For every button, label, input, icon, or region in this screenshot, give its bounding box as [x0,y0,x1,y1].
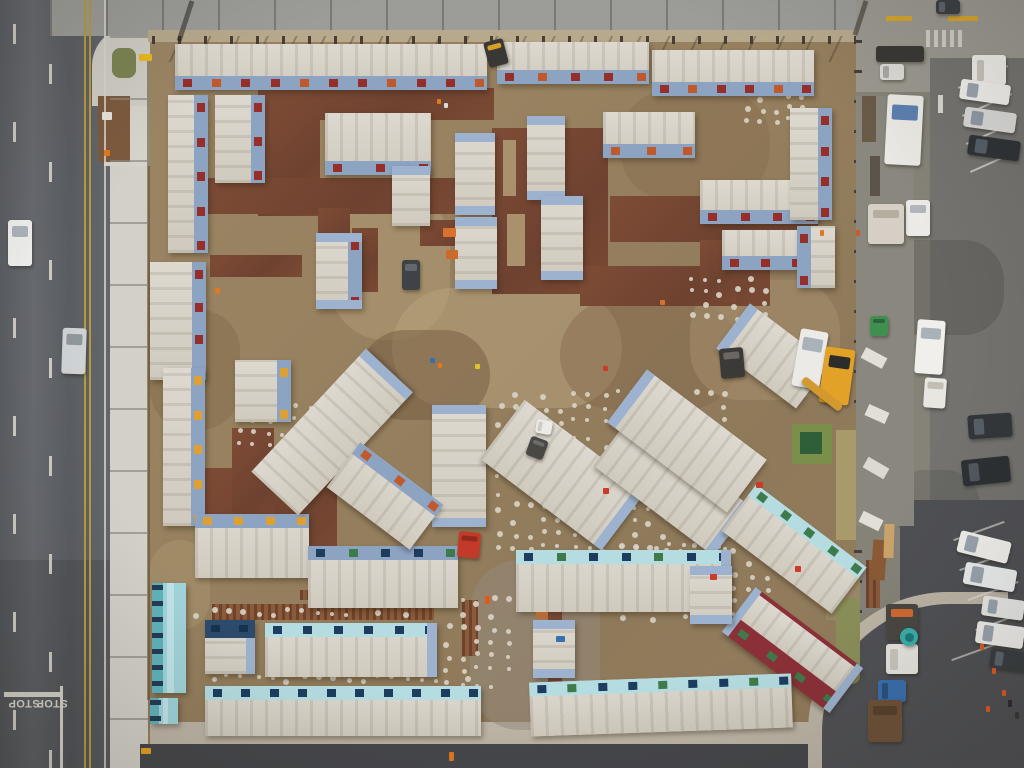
window [273,626,282,634]
wall-trim [308,546,458,560]
window [567,684,576,692]
concrete-footing [572,403,577,408]
cabin-center-3 [527,116,565,200]
window [730,259,739,267]
window [254,103,262,112]
cable-spool [900,628,918,646]
concrete-footing [603,407,607,411]
blue-item [430,358,435,363]
wall-trim [603,144,695,158]
window [557,553,566,561]
concrete-footing [616,389,620,393]
windshield [974,418,985,435]
window [441,689,450,697]
window [203,517,212,525]
concrete-footing [586,437,590,441]
concrete-footing [271,613,276,618]
end-cap [316,233,362,242]
window [254,137,262,146]
cone [986,706,990,712]
windshield [883,66,888,77]
yellow-curb-2 [948,16,978,21]
window [800,234,808,243]
window [683,147,692,155]
concrete-footing [761,109,766,114]
window [266,517,275,525]
windshield [66,334,83,345]
rowhouse-left-2 [215,95,265,183]
windshield [873,210,898,219]
window [604,73,613,81]
concrete-footing [775,120,780,125]
wall-trim [352,442,443,516]
cabin-center-4 [541,196,583,280]
lane-dash [49,358,52,378]
window [351,241,359,250]
concrete-footing [540,394,546,400]
wall-trim [205,686,481,700]
wall-trim [191,368,205,526]
cabin-bottom-2 [533,620,575,678]
concrete-footing [690,288,694,292]
wall-trim [195,514,309,528]
concrete-footing [690,312,696,318]
window [297,517,306,525]
orange-pallet [446,250,458,259]
window [395,626,404,634]
window [821,177,829,186]
window [197,103,205,112]
utility-box [102,112,112,120]
concrete-footing [212,677,217,682]
wood-deck [580,266,770,306]
window [197,207,205,216]
wood-deck [210,255,302,277]
concrete-footing [586,404,591,409]
windshield [890,649,897,670]
concrete-footing [619,544,624,549]
windshield [892,104,918,121]
roof-ridge [163,698,169,724]
window [349,549,358,557]
wall-trim [497,70,649,84]
end-cap [432,405,486,414]
concrete-footing [238,674,242,678]
blue-machine [878,680,906,702]
blue-item [556,636,565,642]
concrete-footing [461,598,465,602]
cone [992,668,996,674]
window [234,517,243,525]
window [628,682,637,690]
window [270,689,279,697]
window [195,270,203,279]
window [197,138,205,147]
windshield [974,138,987,153]
concrete-footing [443,642,449,648]
windshield [977,60,984,81]
rowhouse-top-7 [790,108,832,220]
concrete-footing [267,432,271,436]
window [446,549,455,557]
bottom-road [140,744,904,768]
window [329,79,338,87]
window [537,685,546,693]
concrete-footing [443,668,448,673]
concrete-footing [495,422,501,428]
red-forklift [457,531,481,559]
rowhouse-left-4 [150,262,206,380]
window [194,445,202,454]
material-stack [883,524,894,558]
concrete-footing [682,543,686,547]
window [211,625,220,632]
concrete-footing [574,545,578,549]
concrete-footing [716,292,722,298]
window [376,164,385,172]
window [821,147,829,156]
concrete-footing [465,676,471,682]
concrete-footing [403,612,409,618]
concrete-footing [544,408,549,413]
cone [449,752,454,761]
material-stack [870,156,880,196]
end-cap [541,196,583,205]
pedestrian [1008,700,1012,707]
window [241,689,250,697]
window [469,689,478,697]
lane-dash [49,162,52,182]
window [241,79,250,87]
concrete-footing [765,576,770,581]
window [658,681,667,689]
orange-marker [660,300,665,305]
suv-dark-1 [967,412,1013,439]
lane-dash [49,260,52,280]
concrete-footing [489,652,494,657]
concrete-footing [344,613,348,617]
concrete-footing [633,518,637,522]
end-cap [316,300,362,309]
concrete-footing [361,679,366,684]
concrete-footing [708,390,714,396]
concrete-footing [766,588,771,593]
concrete-footing [722,391,728,397]
concrete-footing [495,507,501,513]
concrete-footing [683,614,688,619]
concrete-footing [510,546,515,551]
skid-steer [719,347,746,379]
end-cap [455,217,497,226]
orange-pallet [443,228,456,237]
windshield [873,319,886,323]
window [737,629,749,641]
window [660,85,669,93]
concrete-footing [732,598,737,603]
roof-ridge [167,583,174,693]
window [589,553,598,561]
window [756,492,768,504]
window [611,147,620,155]
window [779,677,788,685]
window [271,79,280,87]
concrete-footing [749,287,755,293]
window [414,549,423,557]
window [774,85,783,93]
concrete-footing [447,656,452,661]
concrete-footing [474,665,478,669]
orange-marker [104,150,110,156]
window [850,563,862,575]
rowhouse-left-6 [163,368,205,526]
windshield [405,264,418,271]
concrete-footing [496,493,500,497]
concrete-footing [268,443,272,447]
rowhouse-top-6 [722,230,804,270]
window [300,79,309,87]
xwalk-5 [958,30,962,47]
windshield [970,566,984,583]
lane-dash [13,122,16,142]
window [687,553,696,561]
window [654,553,663,561]
concrete-footing [704,289,708,293]
end-cap [533,620,575,629]
concrete-footing [238,428,243,433]
window [316,549,325,557]
concrete-footing [541,543,545,547]
windshield [828,355,851,370]
lane-dash [13,514,16,534]
grass-strip-right [836,430,856,540]
concrete-footing [475,625,481,631]
concrete-footing [347,678,352,683]
concrete-footing [750,575,755,580]
window [280,410,288,419]
concrete-footing [717,279,721,283]
concrete-footing [763,288,769,294]
window [821,116,829,125]
yellow-curb-1 [886,16,912,21]
window [538,73,547,81]
window [360,450,372,462]
yellow-mark [141,748,151,754]
wall-trim [277,360,291,422]
yellow-item [475,364,480,369]
window [800,276,808,285]
concrete-footing [475,651,480,656]
truck-cab-white [906,200,930,236]
windshield [12,226,29,236]
concrete-footing [292,416,296,420]
wall-trim [175,76,487,90]
windshield [537,421,542,431]
concrete-footing [492,595,498,601]
suv-dark-2 [961,456,1011,487]
window [427,500,439,512]
concrete-footing [528,502,534,508]
end-cap [533,669,575,678]
concrete-footing [510,520,516,526]
concrete-footing [506,596,512,602]
concrete-footing [703,302,709,308]
cone [1002,690,1006,696]
rowhouse-top-4 [603,112,695,158]
window [571,73,580,81]
end-cap [427,623,437,677]
concrete-footing [542,529,547,534]
rowhouse-bottom-1 [308,546,458,608]
window [239,625,248,632]
rowhouse-top-2 [497,42,649,84]
concrete-footing [499,403,505,409]
concrete-footing [746,587,751,592]
window [688,85,697,93]
yellow-line-1 [84,0,86,768]
window [197,241,205,250]
concrete-footing [473,601,479,607]
concrete-footing [667,542,671,546]
concrete-footing [660,534,666,540]
concrete-footing [474,639,479,644]
concrete-footing [762,301,767,306]
window [334,626,343,634]
wall-trim [516,550,731,564]
concrete-footing [330,612,334,616]
pedestrian [1015,712,1019,719]
trailer-stack [868,204,904,244]
worker [438,363,442,368]
pickup-white-2 [914,319,946,375]
concrete-footing [571,417,575,421]
xwalk-2 [934,30,938,47]
windshield [982,625,995,642]
cone [485,596,490,604]
concrete-footing [299,608,304,613]
concrete-footing [571,391,576,396]
concrete-footing [460,612,466,618]
concrete-footing [541,517,546,522]
lane-dash [13,24,16,44]
worker [856,230,860,236]
concrete-footing [514,534,519,539]
window [637,73,646,81]
concrete-footing [757,97,763,103]
window [446,79,455,87]
teal-building [152,583,186,693]
wall-trim [818,108,832,220]
concrete-footing [488,666,492,670]
concrete-footing [744,118,749,123]
window [333,164,342,172]
material-stack [862,96,876,142]
concrete-footing [496,545,501,550]
window [827,545,839,557]
concrete-footing [285,607,290,612]
windshield [970,110,983,125]
dark-canopy [876,46,924,62]
deck-cutout [503,140,516,196]
window [773,213,782,221]
windshield [487,42,502,51]
window [708,213,717,221]
concrete-footing [447,623,453,629]
concrete-footing [193,613,199,619]
yellow-mark [139,54,152,61]
lane-dash [49,652,52,672]
window [213,689,222,697]
tank-trailer [923,377,947,408]
window [719,679,728,687]
window [303,626,312,634]
concrete-footing [512,392,518,398]
deck-cutout [507,214,525,266]
wall-trim [652,82,814,96]
concrete-footing [721,405,726,410]
concrete-footing [585,392,590,397]
concrete-footing [645,521,651,527]
window [766,650,778,662]
concrete-footing [704,313,710,319]
rowhouse-top-3 [652,50,814,96]
concrete-footing [420,678,424,682]
concrete-footing [732,572,738,578]
car-dark-top [936,0,960,14]
red-marker [756,482,763,488]
concrete-footing [585,418,589,422]
spool-ring [905,633,914,642]
end-cap [455,206,495,215]
windshield [994,651,1004,666]
rowhouse-left-5 [316,233,362,309]
window [688,680,697,688]
rowhouse-bottom-4 [205,686,481,736]
concrete-footing [406,677,410,681]
concrete-footing [745,106,751,112]
xwalk-1 [926,30,930,47]
windshield [966,83,979,98]
van-white [880,64,904,80]
window [195,303,203,312]
concrete-footing [462,669,467,674]
stop-road-marking: STOP [36,697,68,709]
concrete-footing [316,611,320,615]
concrete-footing [555,544,559,548]
window [802,85,811,93]
windshield [928,382,944,390]
rowhouse-top-8 [797,226,835,288]
concrete-footing [507,641,512,646]
window [505,73,514,81]
windshield [723,351,740,359]
concrete-footing [746,561,752,567]
dirt-bin [868,700,902,742]
windshield [939,2,944,12]
orange-marker [215,288,220,294]
red-marker [710,574,717,580]
window [761,259,770,267]
cube-building [205,620,255,674]
windshield [964,535,979,553]
concrete-footing [774,110,779,115]
window [212,79,221,87]
end-cap [432,518,486,527]
windshield [532,439,545,447]
window [298,689,307,697]
end-cap [690,615,732,624]
window [524,553,533,561]
turf-box [800,432,822,454]
